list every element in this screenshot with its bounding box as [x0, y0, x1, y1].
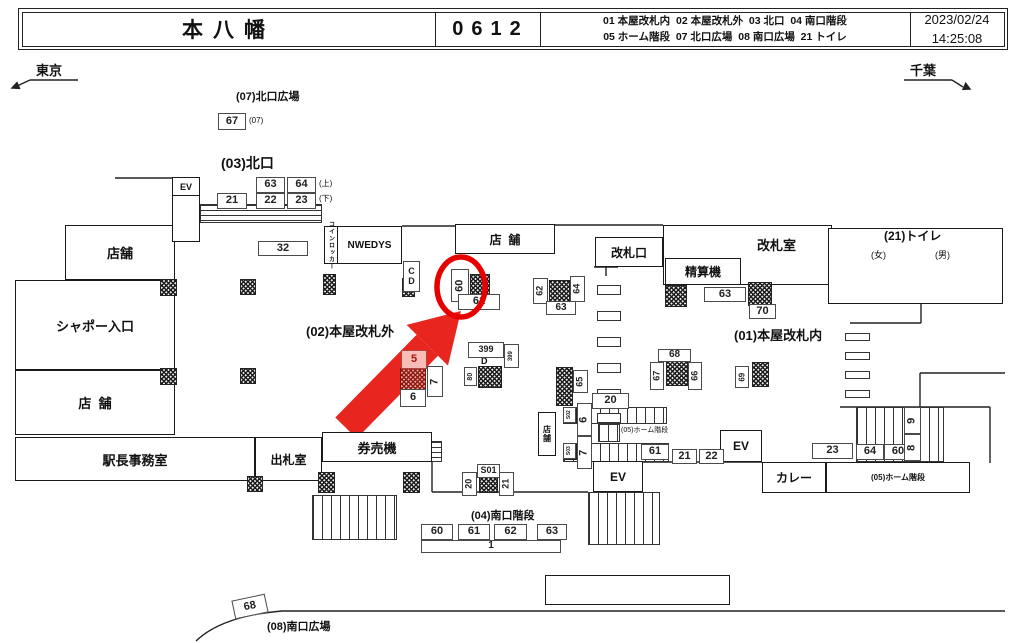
pillar-hatch-11	[748, 282, 772, 306]
room-shop-a-label: 店舗	[107, 243, 133, 262]
camera-box-label: 80	[467, 373, 474, 381]
label-women: (女)	[871, 251, 886, 261]
camera-box-label: 60	[892, 446, 904, 458]
label-outside-gates: (02)本屋改札外	[306, 325, 394, 339]
label-inside-gates: (01)本屋改札内	[734, 329, 822, 343]
room-shop-c-label: 店 舗	[490, 231, 521, 248]
camera-box-label: S03	[567, 447, 572, 456]
camera-box-5: 5	[401, 350, 427, 369]
camera-box-label: 64	[573, 284, 582, 294]
room-ev-north-label: EV	[180, 182, 192, 192]
camera-box-20: 20	[462, 472, 477, 496]
pillar-hatch-2	[323, 274, 336, 295]
camera-box-63: 63	[537, 524, 567, 540]
camera-box-22: 22	[256, 193, 285, 209]
pillar-hatch-9	[549, 280, 570, 302]
camera-box-label: S01	[480, 466, 496, 475]
camera-box-61: 61	[458, 294, 500, 310]
camera-box-66: 66	[688, 362, 702, 390]
direction-chiba: 千葉	[910, 60, 936, 79]
camera-box-23: 23	[287, 193, 316, 209]
camera-box-label: 63	[546, 526, 558, 538]
camera-box-21: 21	[672, 449, 697, 464]
camera-box-label: 63	[719, 289, 731, 301]
camera-box-60: 60	[421, 524, 453, 540]
camera-box-label: C D	[408, 267, 415, 286]
room-gate-label: 改札口	[611, 244, 647, 261]
camera-box-label: 69	[738, 373, 746, 382]
ticket-gate-8	[845, 371, 870, 379]
pillar-hatch-1	[240, 279, 256, 295]
camera-box-CD: C D	[403, 261, 420, 292]
room-ev-right: EV	[720, 430, 762, 462]
ticket-gate-3	[597, 363, 621, 373]
camera-box-label: 20	[604, 395, 616, 407]
label-lower: (下)	[319, 195, 332, 204]
camera-box-label: 70	[756, 306, 768, 318]
pillar-hatch-0	[160, 279, 177, 296]
camera-box-70: 70	[749, 304, 776, 319]
camera-box-label: 23	[826, 445, 838, 457]
tokyo-arrow-icon	[12, 80, 78, 88]
stairs-2	[588, 492, 660, 545]
pillar-hatch-12	[666, 361, 688, 386]
pillar-hatch-8	[478, 366, 502, 388]
pillar-hatch-4	[160, 368, 177, 385]
camera-box-61: 61	[458, 524, 490, 540]
ticket-gate-6	[845, 333, 870, 341]
pillar-hatch-14	[556, 367, 573, 406]
room-home-stairs-05-label: (05)ホーム階段	[871, 472, 925, 483]
stairs-6	[598, 424, 620, 442]
room-shop-b-label: 店 舗	[78, 393, 111, 412]
camera-box-1: 1	[421, 540, 561, 553]
room-ticket-machines: 券売機	[322, 432, 432, 462]
camera-box-6: 6	[577, 403, 592, 436]
camera-box-label: 8	[907, 444, 919, 450]
room-ev-shaft	[172, 195, 200, 242]
camera-box-label: 62	[504, 526, 516, 538]
camera-box-65: 65	[573, 370, 588, 393]
pillar-hatch-6	[247, 476, 263, 492]
camera-box-32: 32	[258, 241, 308, 256]
room-curry-label: カレー	[776, 469, 812, 486]
camera-box-68: 68	[231, 594, 268, 620]
time-value: 14:25:08	[932, 29, 983, 49]
camera-box-6: 6	[400, 389, 426, 407]
camera-box-label: 64	[864, 446, 876, 458]
camera-box-label: 65	[576, 376, 585, 386]
room-stationmaster-office: 駅長事務室	[15, 437, 255, 481]
ticket-gate-1	[597, 311, 621, 321]
camera-box-label: 63	[555, 303, 566, 314]
camera-box-label: 7	[429, 378, 441, 384]
room-chapeau-entrance: シャポー入口	[15, 280, 175, 370]
header-bar: 本八幡 0612 01 本屋改札内 02 本屋改札外 03 北口 04 南口階段…	[18, 8, 1008, 50]
camera-box-61: 61	[641, 444, 669, 460]
pillar-hatch-5	[240, 368, 256, 384]
camera-box-68: 68	[658, 349, 691, 362]
station-map-screen: 本八幡 0612 01 本屋改札内 02 本屋改札外 03 北口 04 南口階段…	[0, 0, 1024, 643]
camera-box-67: 67	[218, 113, 246, 130]
camera-box-S01: S01	[477, 464, 500, 478]
room-shop-b: 店 舗	[15, 370, 175, 435]
camera-box-7: 7	[427, 366, 443, 397]
camera-box-63: 63	[256, 177, 285, 193]
camera-box-label: 399	[508, 351, 514, 361]
datetime: 2023/02/24 14:25:08	[910, 13, 1004, 46]
camera-box-S02: S02	[563, 407, 576, 423]
room-ev-north: EV	[172, 177, 200, 196]
camera-box-label: 21	[226, 195, 238, 207]
pillar-hatch-13	[752, 362, 769, 387]
room-ticket-window-label: 出札室	[270, 451, 306, 468]
ticket-gate-9	[845, 390, 870, 398]
camera-box-64: 64	[570, 276, 585, 302]
camera-box-8: 8	[904, 434, 921, 461]
legend-line-2: 05 ホーム階段 07 北口広場 08 南口広場 21 トイレ	[603, 29, 847, 45]
camera-box-label: S02	[567, 411, 572, 420]
camera-box-label: 66	[690, 371, 699, 381]
label-toilet: (21)トイレ	[884, 230, 941, 243]
camera-box-21: 21	[499, 472, 514, 496]
date-value: 2023/02/24	[924, 10, 989, 30]
room-fare-adjustment-label: 精算機	[685, 263, 721, 280]
label-men: (男)	[935, 251, 950, 261]
camera-box-67: 67	[650, 362, 664, 390]
room-stationmaster-office-label: 駅長事務室	[102, 450, 167, 469]
label-north-exit: (03)北口	[221, 156, 274, 171]
label-upper: (上)	[319, 180, 332, 189]
camera-box-62: 62	[494, 524, 527, 540]
camera-box-S03: S03	[563, 443, 576, 459]
ticket-gate-7	[845, 352, 870, 360]
camera-box-23: 23	[812, 443, 853, 459]
room-ev-center: EV	[593, 461, 643, 492]
camera-box-label: 62	[536, 286, 545, 296]
camera-box-label: 63	[264, 179, 276, 191]
camera-box-399: 399	[468, 342, 504, 358]
label-d: D	[481, 357, 488, 367]
ticket-gate-5	[597, 413, 621, 423]
pillar-hatch-10	[665, 285, 687, 307]
room-nwedys: NWEDYS	[337, 226, 402, 264]
camera-box-label: 5	[411, 354, 417, 366]
camera-box-7: 7	[577, 436, 592, 469]
pillar-hatch-16	[403, 472, 420, 493]
camera-box-label: 22	[705, 451, 717, 463]
camera-box-399: 399	[504, 344, 519, 368]
camera-box-9: 9	[904, 407, 921, 434]
red-hatch-marker	[400, 368, 426, 390]
label-gate-room: 改札室	[757, 239, 796, 253]
room-home-stairs-05: (05)ホーム階段	[826, 462, 970, 493]
room-chapeau-entrance-label: シャポー入口	[56, 316, 134, 335]
camera-box-label: 67	[226, 116, 238, 128]
camera-box-label: 21	[502, 479, 511, 489]
room-curry: カレー	[762, 462, 826, 493]
camera-box-label: 32	[277, 243, 289, 255]
camera-box-label: 6	[579, 416, 591, 422]
camera-box-label: 7	[579, 449, 591, 455]
camera-box-label: 64	[295, 179, 307, 191]
room-gate: 改札口	[595, 237, 663, 267]
label-north-plaza: (07)北口広場	[236, 91, 300, 103]
camera-box-label: 61	[649, 446, 661, 458]
room-ticket-window: 出札室	[255, 437, 322, 481]
room-shop-small: 店舗	[538, 412, 556, 456]
camera-box-label: 60	[431, 526, 443, 538]
camera-box-label: 68	[243, 600, 257, 614]
camera-box-label: 20	[465, 479, 474, 489]
room-south-rect	[545, 575, 730, 605]
camera-box-21: 21	[217, 193, 247, 209]
room-coin-locker: コインロッカー	[324, 226, 338, 264]
room-nwedys-label: NWEDYS	[348, 240, 392, 251]
camera-box-20: 20	[592, 393, 629, 409]
camera-box-63: 63	[546, 301, 576, 315]
room-shop-a: 店舗	[65, 225, 175, 280]
camera-box-label: 9	[907, 417, 919, 423]
camera-box-64: 64	[856, 444, 884, 460]
stairs-1	[312, 495, 397, 540]
room-shop-small-label: 店舗	[542, 425, 553, 443]
direction-tokyo: 東京	[36, 60, 62, 79]
camera-box-80: 80	[464, 367, 477, 386]
pillar-hatch-15	[318, 472, 335, 493]
camera-box-69: 69	[735, 366, 749, 388]
camera-box-63: 63	[704, 287, 746, 302]
camera-box-label: 21	[678, 451, 690, 463]
room-coin-locker-label: コインロッカー	[327, 221, 336, 270]
label-home-stairs-center: (05)ホーム階段	[621, 427, 668, 435]
room-fare-adjustment: 精算機	[665, 258, 741, 285]
room-ev-right-label: EV	[733, 439, 749, 453]
camera-box-label: 22	[264, 195, 276, 207]
label-south-stairs: (04)南口階段	[471, 510, 535, 522]
room-shop-c: 店 舗	[455, 224, 555, 254]
legend-line-1: 01 本屋改札内 02 本屋改札外 03 北口 04 南口階段	[603, 13, 847, 29]
room-ticket-machines-label: 券売機	[357, 438, 396, 457]
ticket-gate-0	[597, 285, 621, 295]
camera-box-label: 6	[410, 392, 416, 404]
label-sub-07: (07)	[249, 117, 263, 126]
pillar-hatch-17	[479, 477, 498, 493]
camera-box-label: 67	[652, 371, 661, 381]
camera-box-label: 61	[468, 526, 480, 538]
ticket-gate-2	[597, 337, 621, 347]
room-ev-center-label: EV	[610, 470, 626, 484]
camera-box-label: 60	[454, 279, 466, 291]
camera-box-label: 68	[669, 350, 680, 361]
camera-box-64: 64	[287, 177, 316, 193]
camera-box-label: 61	[473, 296, 485, 308]
camera-box-label: 1	[488, 541, 494, 552]
chiba-arrow-icon	[904, 80, 970, 89]
camera-box-22: 22	[699, 449, 724, 464]
label-south-plaza: (08)南口広場	[267, 621, 331, 633]
camera-box-label: 23	[295, 195, 307, 207]
camera-box-label: 399	[478, 345, 493, 354]
area-legend: 01 本屋改札内 02 本屋改札外 03 北口 04 南口階段 05 ホーム階段…	[540, 13, 910, 46]
station-name: 本八幡	[23, 13, 435, 46]
station-code: 0612	[435, 13, 540, 46]
